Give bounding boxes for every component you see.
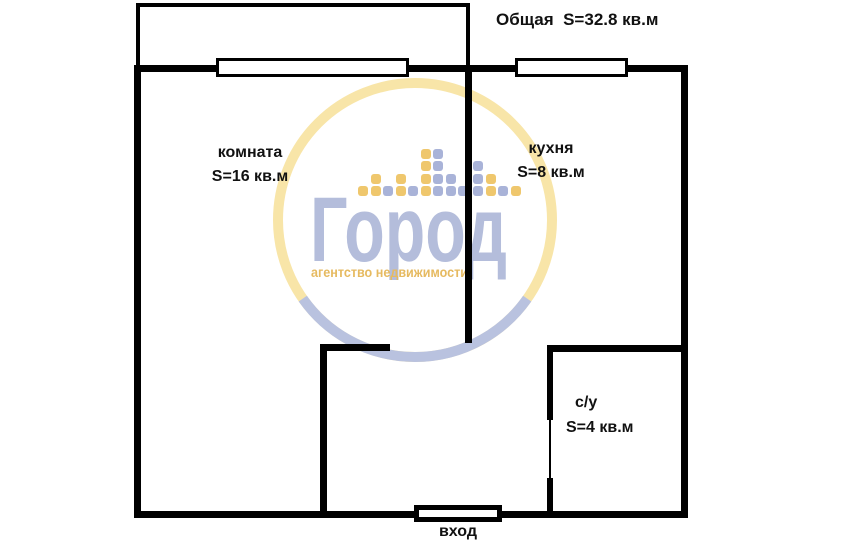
kitchen-window: [515, 58, 628, 77]
room-window: [216, 58, 409, 77]
bathroom-door-line: [549, 420, 551, 480]
room-name: комната: [180, 141, 320, 165]
bathroom-area: S=4 кв.м: [566, 415, 656, 440]
entrance-label: вход: [413, 523, 503, 541]
apartment-outer-wall: [134, 65, 688, 518]
kitchen-area: S=8 кв.м: [487, 161, 615, 185]
floor-plan-image: Город агентство недвижимости Общая S=32.…: [0, 0, 842, 547]
wall-room-kitchen-divider: [465, 70, 472, 343]
bathroom-label: с/у S=4 кв.м: [566, 390, 656, 440]
entrance-door-symbol: [414, 505, 502, 522]
kitchen-label: кухня S=8 кв.м: [487, 137, 615, 185]
kitchen-name: кухня: [487, 137, 615, 161]
wall-bathroom-top: [547, 345, 688, 352]
total-area-label: Общая S=32.8 кв.м: [496, 10, 658, 30]
bathroom-name: с/у: [566, 390, 656, 415]
wall-hallway-horizontal: [320, 344, 390, 351]
wall-hallway-vertical: [320, 344, 327, 514]
room-label: комната S=16 кв.м: [180, 141, 320, 189]
wall-bathroom-left-lower: [547, 478, 553, 514]
wall-bathroom-left-upper: [547, 345, 553, 420]
room-area: S=16 кв.м: [180, 165, 320, 189]
